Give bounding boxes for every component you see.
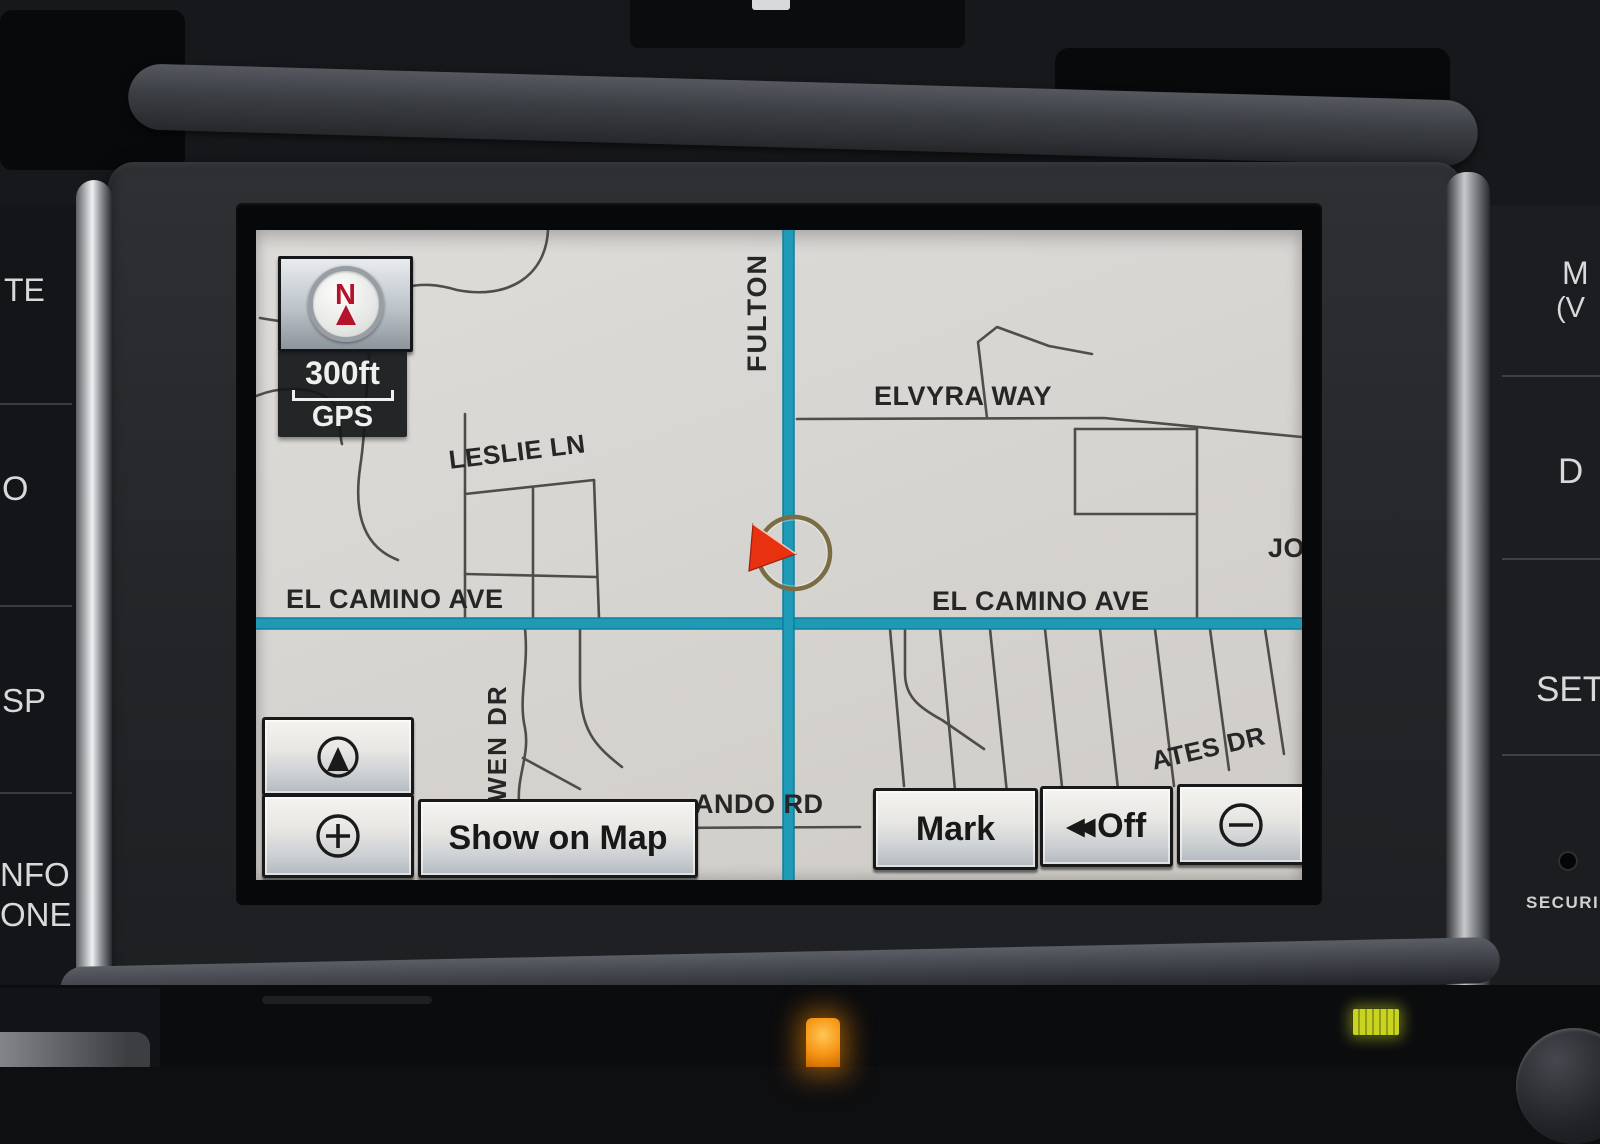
zoom-in-button[interactable] <box>262 794 414 878</box>
chrome-trim-left <box>76 180 112 1067</box>
hazard-button-light[interactable] <box>806 1018 840 1067</box>
hw-button-route-partial[interactable]: TE <box>4 272 45 309</box>
hw-button-phone-partial[interactable]: ONE <box>0 896 72 934</box>
disc-slot <box>262 996 432 1004</box>
hw-button-dest-partial[interactable]: D <box>1558 452 1583 492</box>
show-on-map-button[interactable]: Show on Map <box>418 799 698 878</box>
street-label-fulton: FULTON <box>742 230 773 372</box>
security-label: SECURI <box>1526 893 1599 913</box>
lower-trim-wedge <box>0 1032 150 1067</box>
hw-button-audio-partial[interactable]: O <box>2 470 28 509</box>
security-led <box>1558 851 1578 871</box>
street-label-el-camino-east: EL CAMINO AVE <box>932 586 1150 617</box>
street-label-jo: JO <box>1268 533 1302 564</box>
hw-button-map-partial[interactable]: M <box>1562 255 1589 292</box>
compass-north-letter: N <box>335 283 356 308</box>
mark-label: Mark <box>916 810 995 849</box>
compass-needle-icon <box>336 305 356 325</box>
plus-icon <box>313 811 363 861</box>
show-on-map-label: Show on Map <box>448 819 667 858</box>
map-scale-indicator: 300ft GPS <box>278 351 407 437</box>
street-label-ando-rd: ANDO RD <box>694 789 824 820</box>
voice-off-button[interactable]: ◀◀ Off <box>1040 786 1173 867</box>
hardware-panel-right <box>1490 205 1600 1067</box>
gps-status: GPS <box>312 403 373 432</box>
chrome-trim-right <box>1446 172 1490 1067</box>
zoom-out-button[interactable] <box>1177 784 1302 865</box>
dash-top-notch <box>752 0 790 10</box>
compass-button[interactable]: N <box>278 256 413 352</box>
scale-distance: 300ft <box>305 357 380 389</box>
clock-lcd <box>1352 1008 1400 1036</box>
dash-center-slat <box>630 0 965 48</box>
compass-dial: N <box>308 266 384 342</box>
minus-icon <box>1216 800 1266 850</box>
main-road-el-camino <box>256 618 1302 629</box>
map-viewport[interactable]: FULTON ELVYRA WAY LESLIE LN EL CAMINO AV… <box>256 230 1302 880</box>
mark-button[interactable]: Mark <box>873 788 1038 870</box>
vehicle-position-marker <box>748 507 840 599</box>
hardware-panel-left <box>0 205 76 1067</box>
rewind-arrows-icon: ◀◀ <box>1067 813 1088 840</box>
hw-button-info-partial[interactable]: NFO <box>0 856 70 894</box>
off-label: Off <box>1097 807 1146 846</box>
north-up-icon <box>314 733 362 781</box>
street-label-el-camino-west: EL CAMINO AVE <box>286 584 504 615</box>
hw-button-disp-partial[interactable]: SP <box>2 682 46 720</box>
map-orientation-button[interactable] <box>262 717 414 796</box>
scale-bracket-icon <box>292 390 394 401</box>
hw-button-voice-partial[interactable]: (V <box>1556 292 1585 325</box>
hw-button-setup-partial[interactable]: SET <box>1536 670 1600 710</box>
street-label-elvyra-way: ELVYRA WAY <box>874 381 1052 412</box>
